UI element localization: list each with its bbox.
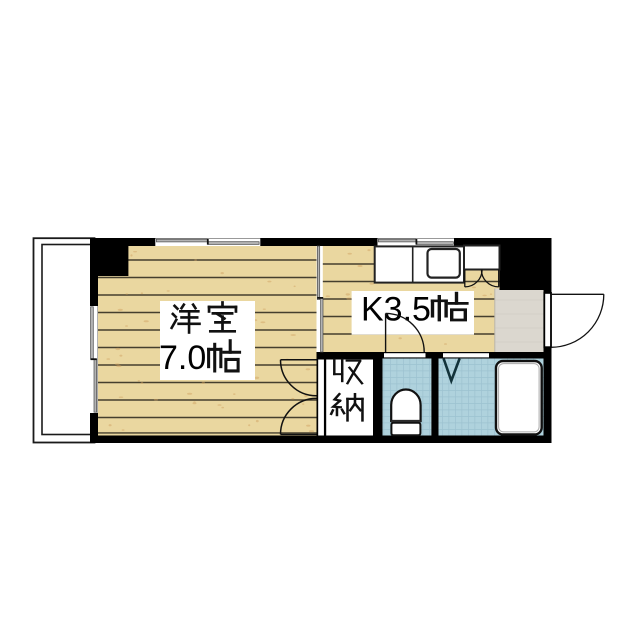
svg-text:7.0: 7.0 xyxy=(159,339,206,377)
svg-text:K3.5: K3.5 xyxy=(361,291,431,329)
